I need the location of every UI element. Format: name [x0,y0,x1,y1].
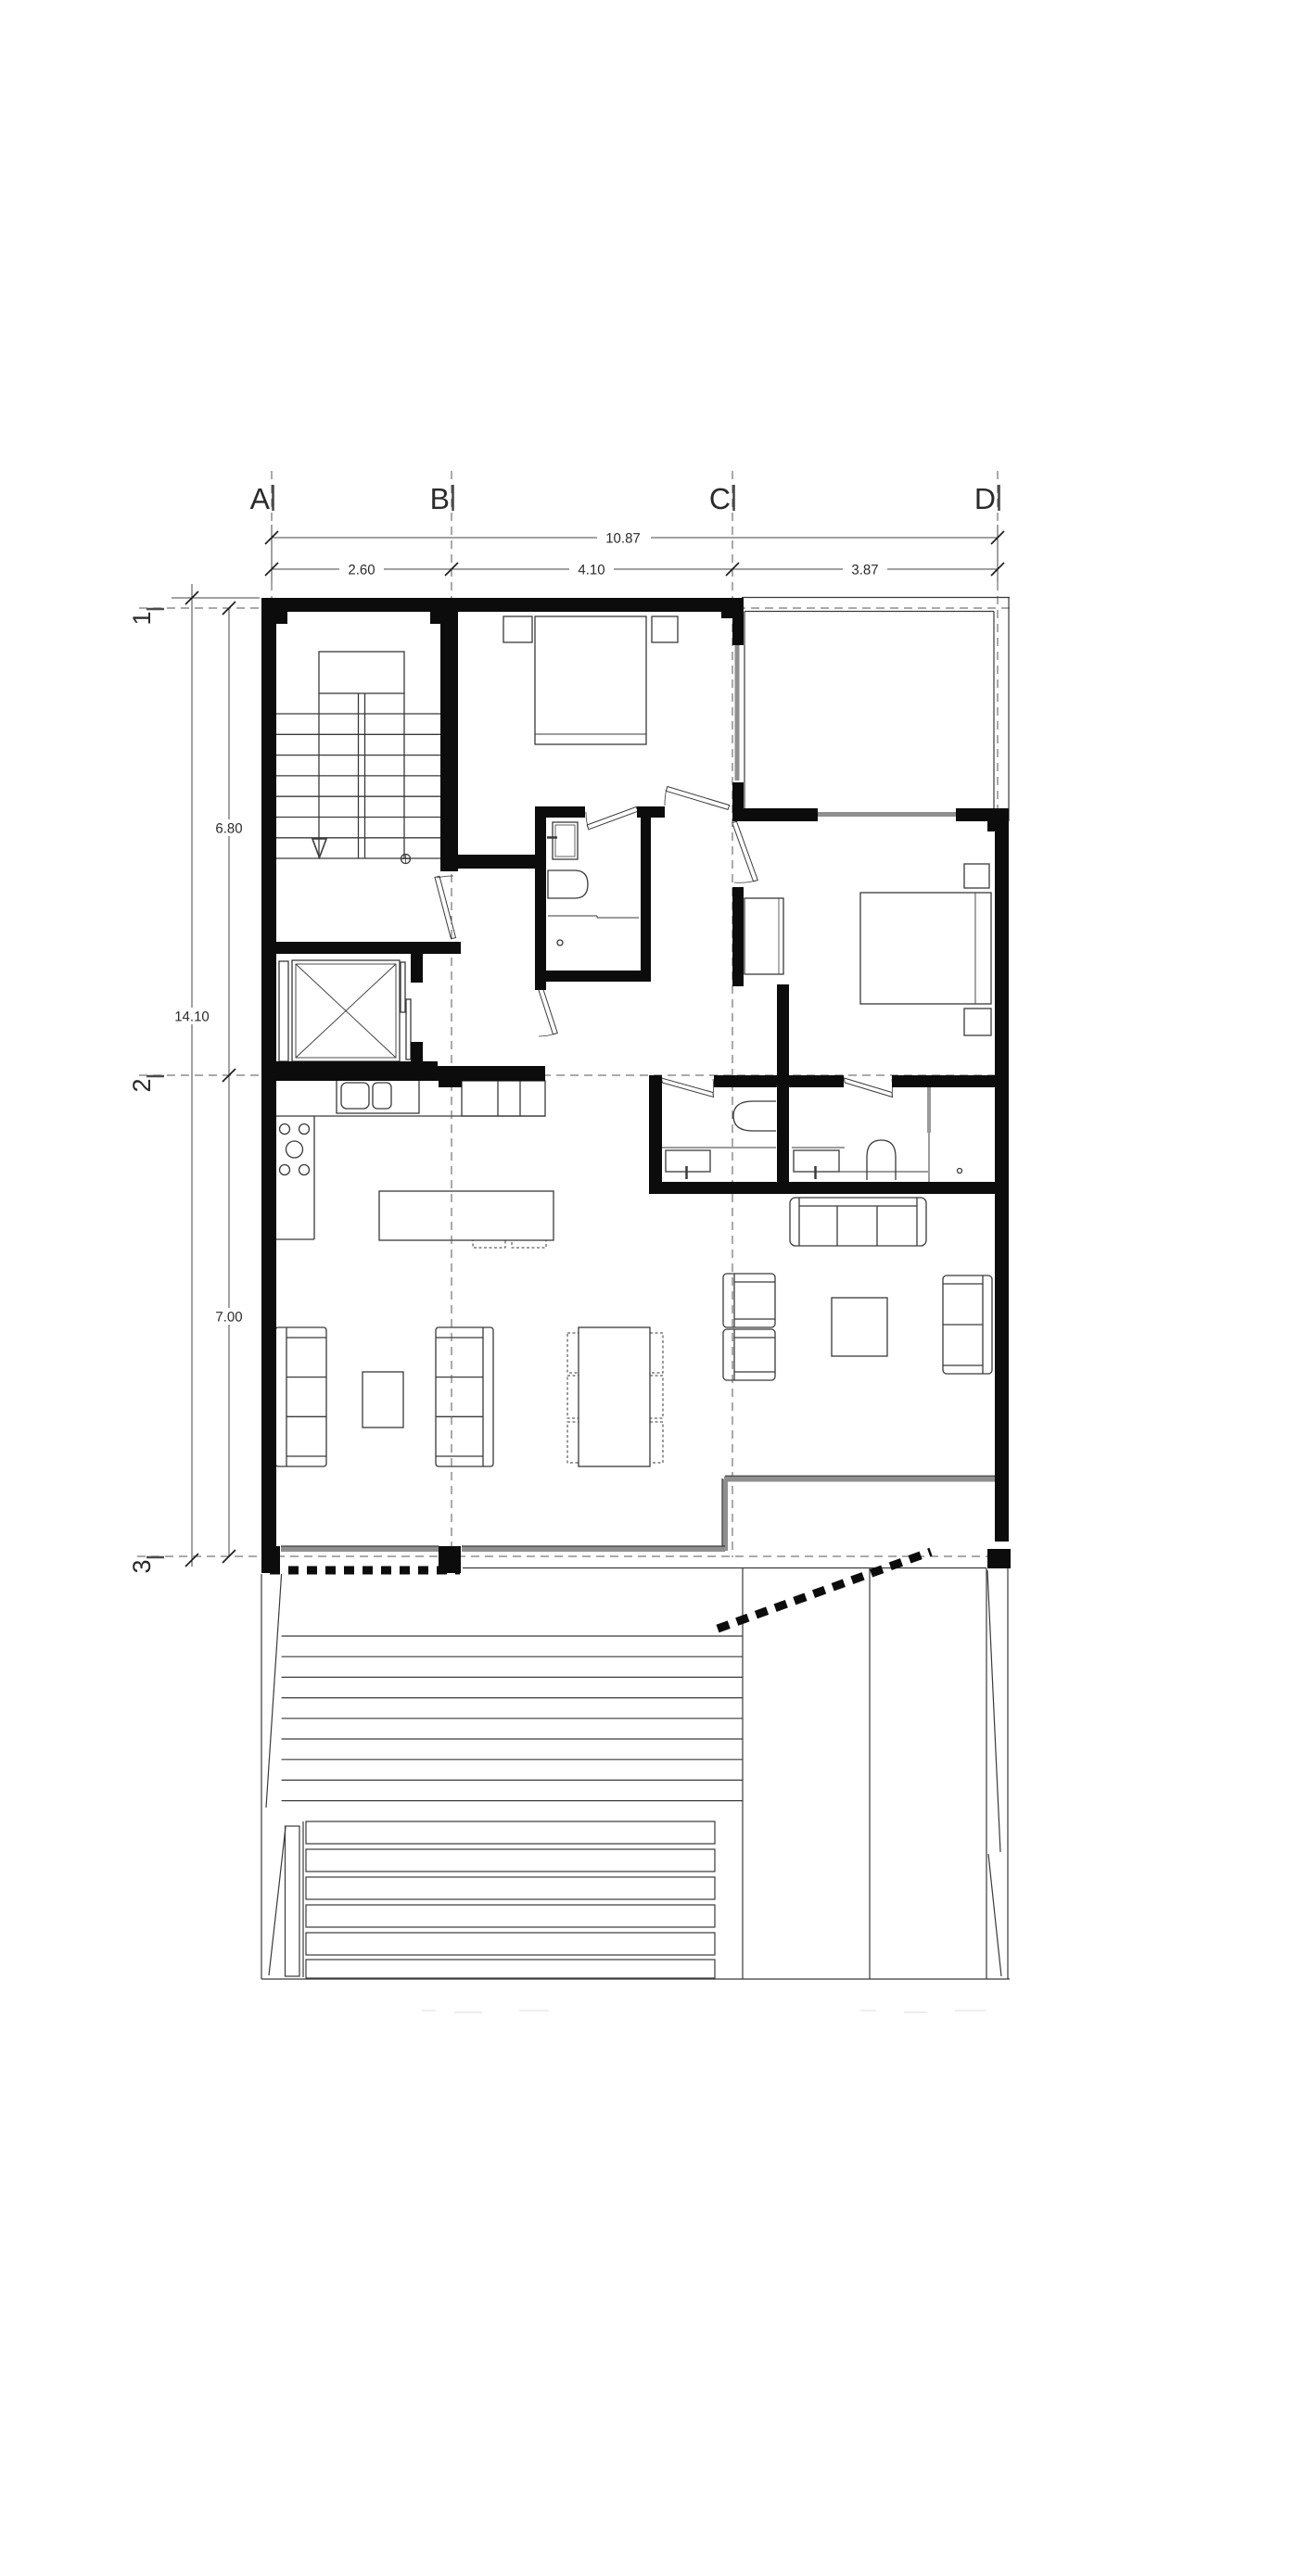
svg-text:B: B [430,482,450,515]
svg-text:2: 2 [128,1078,156,1092]
svg-text:C: C [709,482,731,515]
svg-text:2.60: 2.60 [348,563,375,578]
svg-text:7.00: 7.00 [215,1310,242,1326]
svg-text:1: 1 [128,611,156,625]
svg-text:10.87: 10.87 [605,531,641,547]
svg-text:6.80: 6.80 [215,821,242,837]
svg-text:A: A [250,482,271,515]
svg-text:4.10: 4.10 [578,563,604,578]
svg-text:3.87: 3.87 [851,563,878,578]
svg-text:D: D [974,482,996,515]
svg-text:3: 3 [128,1559,156,1573]
svg-text:14.10: 14.10 [174,1009,210,1025]
